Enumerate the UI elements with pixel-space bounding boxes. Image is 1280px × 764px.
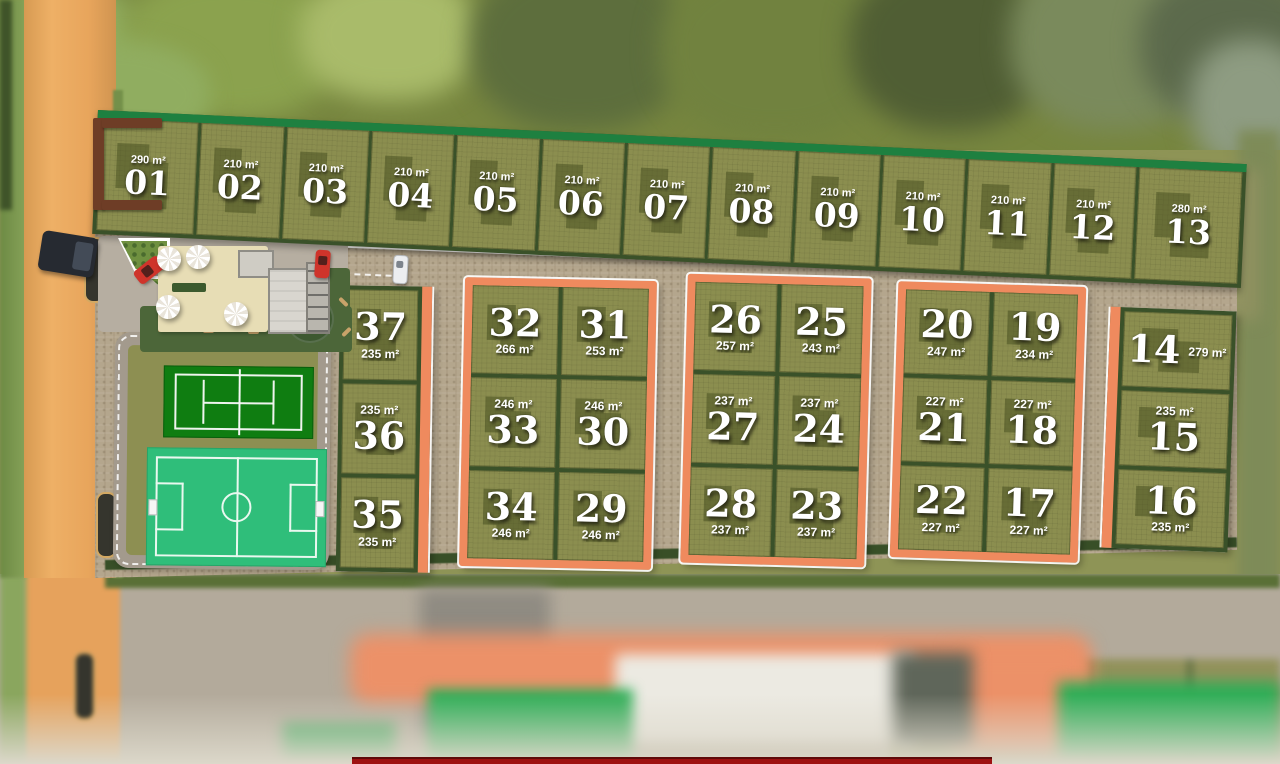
lot-number: 28	[704, 485, 758, 522]
lot-number: 26	[709, 301, 763, 338]
lot-17[interactable]: 17227 m²	[986, 468, 1073, 555]
lot-number: 24	[792, 410, 846, 447]
block-lots-17-22: 20247 m² 19234 m² 21227 m² 18227 m² 2222…	[890, 281, 1087, 563]
tree-blob	[470, 0, 690, 130]
lot-10[interactable]: 10210 m²	[879, 155, 967, 271]
lot-32[interactable]: 32266 m²	[471, 285, 559, 375]
block-lots-14-16: 14279 m² 15235 m² 16235 m²	[1101, 307, 1236, 553]
lot-number: 36	[352, 418, 405, 455]
lot-number: 12	[1069, 211, 1116, 244]
lot-31[interactable]: 31253 m²	[561, 287, 649, 377]
lot-area: 237 m²	[797, 525, 835, 540]
lot-number: 17	[1002, 485, 1056, 523]
lot-16[interactable]: 16235 m²	[1116, 469, 1227, 548]
lot-29[interactable]: 29246 m²	[557, 472, 645, 562]
lot-number: 19	[1008, 309, 1062, 347]
lot-number: 37	[354, 309, 407, 346]
lot-area: 235 m²	[358, 534, 396, 549]
lot-number: 14	[1127, 331, 1181, 369]
lot-number: 08	[728, 195, 775, 228]
lot-26[interactable]: 26257 m²	[693, 282, 777, 372]
sports-infield	[126, 345, 318, 557]
planter	[172, 283, 206, 292]
lot-22[interactable]: 22227 m²	[898, 465, 985, 552]
lot-20[interactable]: 20247 m²	[903, 289, 990, 376]
lot-14[interactable]: 14279 m²	[1122, 311, 1233, 390]
lot-area: 279 m²	[1188, 344, 1227, 359]
boundary-wall	[93, 118, 104, 210]
lot-23[interactable]: 23237 m²	[774, 469, 858, 559]
lot-03[interactable]: 03210 m²	[282, 127, 370, 243]
lot-area: 247 m²	[927, 344, 965, 359]
lot-number: 27	[706, 408, 760, 445]
lot-01[interactable]: 01290 m²	[96, 118, 198, 234]
lot-number: 06	[557, 187, 604, 220]
bottom-fade	[0, 694, 1280, 764]
lot-36[interactable]: 36235 m²	[341, 383, 416, 474]
lot-30[interactable]: 30246 m²	[559, 379, 647, 469]
lot-13[interactable]: 13280 m²	[1134, 167, 1242, 284]
block-lots-23-28: 26257 m² 25243 m² 27237 m² 24237 m² 2823…	[680, 274, 872, 568]
lot-09[interactable]: 09210 m²	[793, 151, 881, 267]
soccer-goal-left	[148, 499, 157, 515]
sports-area	[113, 332, 331, 570]
lot-number: 02	[216, 171, 263, 204]
lot-number: 20	[920, 306, 974, 344]
lot-area: 227 m²	[921, 520, 959, 535]
lot-number: 07	[643, 191, 690, 224]
lot-24[interactable]: 24237 m²	[777, 376, 861, 466]
lot-number: 22	[914, 482, 968, 520]
lot-05[interactable]: 05210 m²	[452, 135, 540, 251]
block-lots-29-34: 32266 m² 31253 m² 33246 m² 30246 m² 3424…	[459, 277, 657, 570]
road-crossing-blurred	[74, 652, 95, 720]
lot-number: 09	[813, 199, 860, 232]
lot-11[interactable]: 11210 m²	[964, 159, 1052, 275]
lot-number: 21	[917, 409, 971, 447]
lot-number: 15	[1147, 418, 1201, 456]
lot-number: 04	[387, 179, 434, 212]
clubhouse-roof	[268, 268, 310, 334]
lot-34[interactable]: 34246 m²	[467, 470, 555, 560]
soccer-goal-right	[315, 501, 324, 517]
lot-15[interactable]: 15235 m²	[1119, 390, 1230, 469]
lot-number: 33	[486, 411, 540, 448]
tennis-court	[163, 365, 314, 439]
lot-number: 35	[351, 497, 404, 534]
lot-07[interactable]: 07210 m²	[623, 143, 711, 259]
lot-number: 34	[484, 489, 538, 526]
lot-27[interactable]: 27237 m²	[691, 374, 775, 464]
lot-19[interactable]: 19234 m²	[991, 292, 1078, 379]
lot-28[interactable]: 28237 m²	[688, 466, 772, 556]
red-car-parked	[314, 250, 331, 279]
lot-area: 234 m²	[1015, 346, 1053, 361]
background-bottom-blur	[0, 574, 1280, 764]
lot-number: 01	[124, 166, 171, 199]
lot-area: 235 m²	[361, 346, 399, 361]
lot-number: 10	[898, 203, 945, 236]
soccer-field	[146, 447, 327, 567]
lot-area: 246 m²	[492, 526, 530, 541]
soccer-center-circle	[221, 492, 251, 522]
lot-number: 13	[1164, 215, 1211, 248]
lot-number: 05	[472, 183, 519, 216]
white-car-parked	[392, 255, 408, 285]
lot-area: 227 m²	[1009, 522, 1047, 537]
lot-04[interactable]: 04210 m²	[367, 131, 455, 247]
lot-area: 266 m²	[495, 341, 533, 356]
lot-35[interactable]: 35235 m²	[340, 477, 415, 568]
lot-number: 03	[301, 175, 348, 208]
treeline-left	[0, 0, 12, 210]
lot-12[interactable]: 12210 m²	[1049, 163, 1137, 279]
lot-number: 11	[984, 207, 1031, 240]
soccer-penalty-box-right	[289, 483, 318, 532]
lot-number: 16	[1144, 482, 1198, 520]
lot-area: 237 m²	[711, 523, 749, 538]
lot-area: 253 m²	[585, 343, 623, 358]
lot-06[interactable]: 06210 m²	[537, 139, 625, 255]
boundary-wall	[102, 200, 162, 210]
lot-21[interactable]: 21227 m²	[901, 377, 988, 464]
umbrella-icon	[157, 247, 181, 271]
hedge-lower	[105, 574, 1280, 588]
lot-number: 32	[488, 304, 542, 341]
lot-area: 257 m²	[716, 338, 754, 353]
umbrella-icon	[186, 245, 210, 269]
lot-25[interactable]: 25243 m²	[779, 284, 863, 374]
site-plan-map: 01290 m² 02210 m² 03210 m² 04210 m² 0521…	[0, 0, 1280, 764]
lot-number: 18	[1005, 412, 1059, 450]
lot-33[interactable]: 33246 m²	[469, 377, 557, 467]
banner-strip	[352, 757, 992, 764]
boundary-wall	[102, 118, 162, 128]
truck	[37, 230, 99, 278]
lot-number: 25	[795, 303, 849, 340]
lot-area: 246 m²	[582, 528, 620, 543]
lot-18[interactable]: 18227 m²	[989, 380, 1076, 467]
lot-number: 31	[578, 306, 632, 343]
lot-08[interactable]: 08210 m²	[708, 147, 796, 263]
lot-area: 243 m²	[802, 340, 840, 355]
lot-37[interactable]: 37235 m²	[343, 289, 418, 380]
soccer-penalty-box-left	[155, 482, 184, 531]
lot-number: 30	[576, 413, 630, 450]
umbrella-icon	[224, 302, 248, 326]
tree-blob	[300, 0, 480, 100]
lot-number: 29	[574, 491, 628, 528]
lot-number: 23	[790, 488, 844, 525]
lot-02[interactable]: 02210 m²	[196, 123, 284, 239]
umbrella-icon	[156, 295, 180, 319]
lot-area: 235 m²	[1151, 519, 1190, 534]
